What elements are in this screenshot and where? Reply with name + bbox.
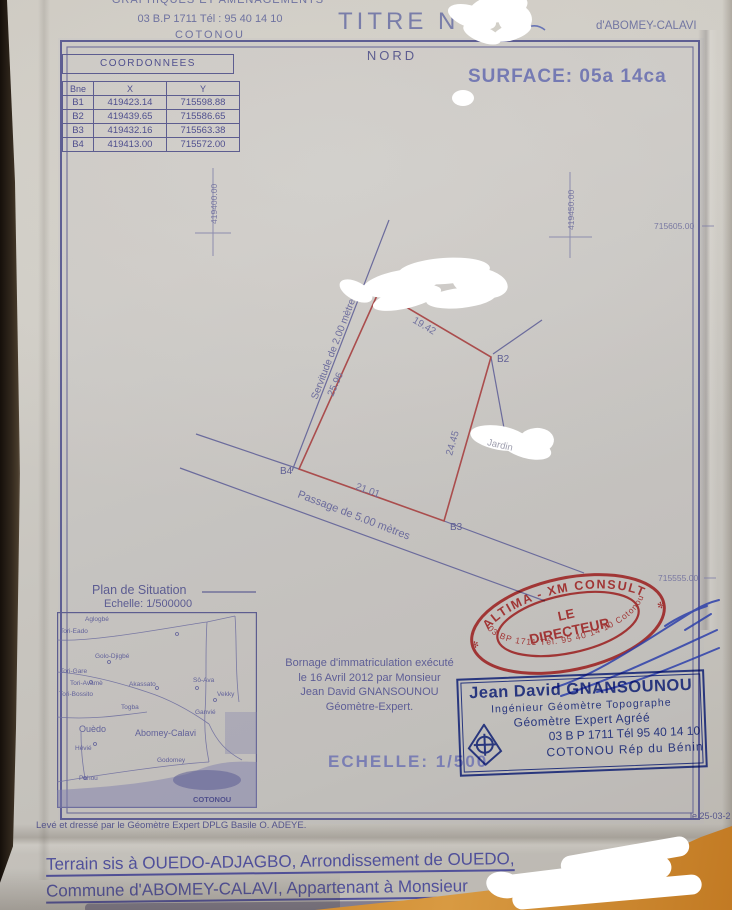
cell-y: 715563.38 bbox=[167, 124, 240, 138]
stamp-star-left: ✻ bbox=[470, 639, 479, 650]
bornage-line: Bornage d'immatriculation exécuté bbox=[262, 656, 477, 671]
region-label: d'ABOMEY-CALAVI bbox=[596, 20, 697, 32]
map-place: Golo-Djigbé bbox=[95, 653, 130, 660]
paper-edge-right bbox=[722, 0, 732, 910]
map-place: Sô-Ava bbox=[193, 677, 215, 684]
whiteout-dot bbox=[452, 90, 474, 106]
grid-ticks bbox=[195, 168, 716, 578]
map-place: Togba bbox=[121, 704, 139, 711]
map-place: Hêvié bbox=[75, 745, 92, 752]
map-place: Tori-Gare bbox=[60, 668, 87, 675]
coords-header-row: Bne X Y bbox=[63, 82, 240, 96]
col-header-y: Y bbox=[167, 82, 240, 96]
scanned-survey-document: GRAPHIQUES ET AMENAGEMENTS 03 B.P 1711 T… bbox=[0, 0, 732, 910]
cell-x: 419423.14 bbox=[94, 96, 167, 110]
cell-x: 419432.16 bbox=[94, 124, 167, 138]
map-place: Aglogbé bbox=[85, 616, 109, 623]
map-place: Tori-Avamè bbox=[70, 680, 103, 687]
north-label: NORD bbox=[367, 48, 417, 63]
situation-title-rule bbox=[202, 591, 256, 593]
table-row: B4 419413.00 715572.00 bbox=[63, 138, 240, 152]
grid-northing-top: 715605.00 bbox=[654, 221, 694, 231]
passage-label: Passage de 5.00 mètres bbox=[296, 489, 412, 543]
surface-label: SURFACE: 05a 14ca bbox=[468, 66, 667, 88]
cell-x: 419413.00 bbox=[94, 138, 167, 152]
terrain-owner-line: Commune d'ABOMEY-CALAVI, Appartenant à M… bbox=[46, 876, 468, 901]
cell-y: 715598.88 bbox=[167, 96, 240, 110]
coords-table-title: COORDONNEES bbox=[62, 54, 234, 74]
grid-easting-right: 419450.00 bbox=[566, 190, 576, 230]
side-length-b4b1: 25.96 bbox=[326, 370, 346, 398]
side-length-b3b4: 21.01 bbox=[354, 481, 382, 500]
side-length-b2b3: 24.45 bbox=[444, 429, 462, 457]
map-place: Ouèdo bbox=[79, 724, 106, 734]
parcel-boundary bbox=[299, 291, 491, 521]
cell-pt: B2 bbox=[63, 110, 94, 124]
situation-map: Aglogbé Tori-Eado Golo-Djigbé Tori-Gare … bbox=[57, 612, 257, 808]
bornage-line: Jean David GNANSOUNOU bbox=[262, 685, 477, 700]
side-length-b1b2: 19.42 bbox=[410, 315, 437, 338]
table-row: B3 419432.16 715563.38 bbox=[63, 124, 240, 138]
org-name-clipped: GRAPHIQUES ET AMENAGEMENTS bbox=[88, 0, 348, 6]
terrain-location-line: Terrain sis à OUEDO-ADJAGBO, Arrondissem… bbox=[46, 849, 515, 875]
cell-x: 419439.65 bbox=[94, 110, 167, 124]
map-place: Pahou bbox=[79, 775, 98, 782]
compass-icon bbox=[465, 723, 505, 766]
point-label-b3: B3 bbox=[450, 522, 463, 533]
col-header-bne: Bne bbox=[63, 82, 94, 96]
situation-scale: Echelle: 1/500000 bbox=[104, 598, 192, 610]
map-place: Tori-Eado bbox=[60, 628, 88, 635]
map-place: Akassato bbox=[129, 681, 156, 688]
servitude-label: Servitude de 2.00 mètres bbox=[310, 293, 360, 401]
col-header-x: X bbox=[94, 82, 167, 96]
cell-y: 715586.65 bbox=[167, 110, 240, 124]
coords-table: COORDONNEES Bne X Y B1 419423.14 715598.… bbox=[62, 54, 240, 152]
blue-surveyor-stamp: Jean David GNANSOUNOU Ingénieur Géomètre… bbox=[456, 669, 708, 776]
table-row: B2 419439.65 715586.65 bbox=[63, 110, 240, 124]
cell-pt: B1 bbox=[63, 96, 94, 110]
point-label-b2: B2 bbox=[497, 354, 510, 365]
org-city: COTONOU bbox=[80, 29, 340, 41]
cell-pt: B4 bbox=[63, 138, 94, 152]
map-place: Ganvié bbox=[195, 709, 216, 716]
map-lake bbox=[225, 712, 257, 754]
point-label-b4: B4 bbox=[280, 466, 293, 477]
map-place-cotonou: COTONOU bbox=[193, 795, 231, 804]
table-row: B1 419423.14 715598.88 bbox=[63, 96, 240, 110]
bornage-line: le 16 Avril 2012 par Monsieur bbox=[262, 671, 477, 686]
bornage-note: Bornage d'immatriculation exécuté le 16 … bbox=[262, 656, 477, 714]
cell-y: 715572.00 bbox=[167, 138, 240, 152]
cell-pt: B3 bbox=[63, 124, 94, 138]
footer-date: le 25-03-2 bbox=[690, 811, 732, 821]
bornage-line: Géomètre-Expert. bbox=[262, 700, 477, 715]
surveyor-credit: Levé et dressé par le Géomètre Expert DP… bbox=[36, 820, 306, 831]
map-place: Vekky bbox=[217, 691, 235, 698]
grid-easting-left: 419400.00 bbox=[209, 184, 219, 224]
map-place: Tori-Bossito bbox=[59, 691, 93, 698]
dark-background-strip bbox=[0, 0, 26, 910]
map-place: Abomey-Calavi bbox=[135, 728, 196, 738]
map-place: Godomey bbox=[157, 757, 186, 764]
org-address: 03 B.P 1711 Tél : 95 40 14 10 bbox=[80, 13, 340, 25]
situation-title: Plan de Situation bbox=[92, 583, 187, 597]
vertical-crease-right bbox=[698, 30, 718, 630]
vertical-crease-left bbox=[38, 0, 50, 880]
map-lagoon-dark bbox=[173, 770, 241, 790]
